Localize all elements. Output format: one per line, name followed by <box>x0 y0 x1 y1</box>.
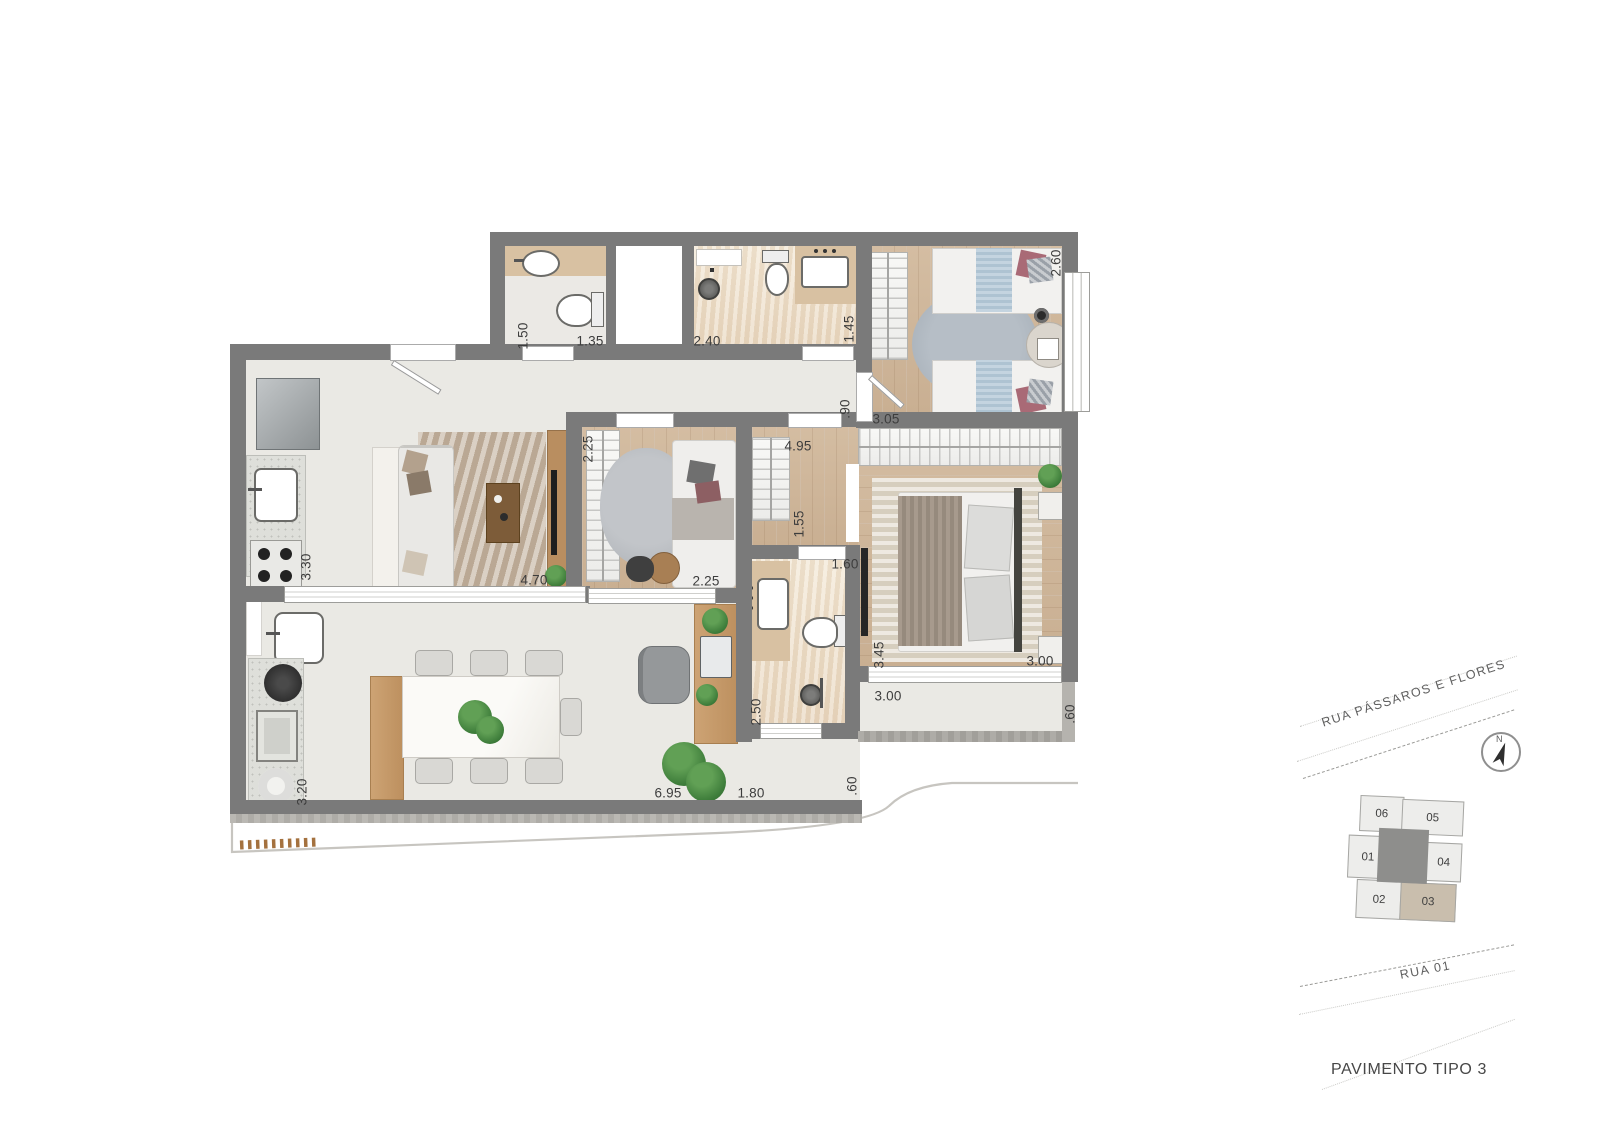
wall-bath1-shaft <box>606 246 616 350</box>
wall-nook-right <box>736 412 752 742</box>
master-tv <box>861 548 868 636</box>
wall-terrace-bottom <box>230 800 862 814</box>
coffee-table-items <box>494 495 502 503</box>
dim-bath1-width: 1.35 <box>576 334 603 349</box>
bath2-toilet-tank <box>762 250 789 263</box>
suite-bath-sink <box>757 578 789 630</box>
master-blanket <box>898 496 962 646</box>
bed1-runner <box>976 248 1012 312</box>
stove-burners <box>258 548 270 560</box>
terrace-niche <box>246 600 262 656</box>
stove <box>250 540 302 592</box>
dining-chair <box>525 650 563 676</box>
dim-suite-bath-depth: 2.50 <box>749 698 764 725</box>
desk-plant-2 <box>696 684 718 706</box>
dim-suite-hall-width: 1.55 <box>792 510 807 537</box>
bath1-faucet <box>514 259 524 262</box>
kitchen-sink <box>254 468 298 522</box>
keyplan-unit-02: 02 <box>1355 879 1403 920</box>
desk-plant-1 <box>702 608 728 634</box>
bedroom1-window <box>1064 272 1090 412</box>
dim-kitchen-depth: 3.30 <box>299 553 314 580</box>
master-pillow-1 <box>964 504 1014 571</box>
wall-left <box>230 344 246 816</box>
daybed-pillow-maroon <box>695 480 722 503</box>
suite-shower-head <box>800 684 822 706</box>
north-compass: N <box>1481 732 1521 772</box>
bath1-toilet-tank <box>591 292 604 327</box>
sofa-pillow-2 <box>406 470 431 495</box>
dim-bedroom1-width: 3.05 <box>872 412 899 427</box>
keyplan-unit-04: 04 <box>1425 842 1463 883</box>
wall-suite-bath-bottom-r <box>818 723 860 739</box>
dim-office-depth: 2.25 <box>581 435 596 462</box>
wall-master-left <box>845 545 860 723</box>
floor-plan-page: 1.50 1.35 2.40 1.45 2.60 3.05 .90 4.95 1… <box>0 0 1600 1130</box>
fridge <box>256 378 320 450</box>
dim-nook-edge: .60 <box>845 776 860 795</box>
terrace-parapet <box>230 814 862 823</box>
dim-office-width: 2.25 <box>692 574 719 589</box>
dining-chair <box>470 758 508 784</box>
master-plant <box>1038 464 1062 488</box>
burner <box>258 768 294 804</box>
office-chair <box>626 556 654 582</box>
tv <box>551 470 557 555</box>
master-headboard <box>1014 488 1022 652</box>
dining-chair <box>470 650 508 676</box>
bath2-faucet <box>814 249 818 253</box>
wall-office-bottom-r <box>712 588 752 603</box>
dim-master-depth: 3.45 <box>872 641 887 668</box>
suite-toilet-bowl <box>802 617 838 648</box>
living-plant <box>545 565 567 587</box>
sofa-pillow-3 <box>402 550 428 576</box>
unit-label: 04 <box>1437 856 1450 869</box>
kitchen-faucet <box>248 488 262 491</box>
dining-chair <box>415 650 453 676</box>
suite-corridor-opening <box>788 413 842 428</box>
laundry-sink <box>274 612 324 664</box>
balcony-parapet <box>858 731 1064 742</box>
dim-bath2-width: 2.40 <box>693 334 720 349</box>
dim-hall-width: .90 <box>838 399 853 418</box>
sofa-console <box>372 447 400 590</box>
dim-suite-length: 4.95 <box>784 439 811 454</box>
dim-master-width: 3.00 <box>1026 654 1053 669</box>
dim-suite-bath-width: 1.60 <box>831 557 858 572</box>
bath1-toilet-bowl <box>556 294 594 327</box>
laptop <box>700 636 732 678</box>
wok-pan <box>264 664 302 702</box>
suite-bath-window <box>760 723 822 739</box>
dim-nook-width: 1.80 <box>737 786 764 801</box>
entry-door <box>390 344 456 361</box>
laundry-faucet <box>266 632 280 635</box>
dining-chair <box>415 758 453 784</box>
bath2-toilet-bowl <box>765 263 789 296</box>
side-table-cup <box>1034 308 1049 323</box>
side-table-tray <box>1037 338 1059 360</box>
unit-label: 05 <box>1426 811 1439 824</box>
dim-terrace-depth: 3.20 <box>295 778 310 805</box>
office-window <box>588 588 716 604</box>
dim-terrace-length: 6.95 <box>654 786 681 801</box>
dim-living-width: 4.70 <box>520 573 547 588</box>
dim-bedroom1-depth: 2.60 <box>1049 249 1064 276</box>
plan-caption: PAVIMENTO TIPO 3 <box>1331 1061 1487 1079</box>
wall-shaft-bath2 <box>682 246 694 350</box>
living-sliding-door <box>284 586 586 603</box>
dim-bath2-depth: 1.45 <box>842 315 857 342</box>
master-opening <box>846 464 859 542</box>
keyplan: 06 05 01 04 02 03 <box>1337 782 1473 928</box>
bath2-door <box>802 346 854 361</box>
unit-label: 03 <box>1421 896 1434 909</box>
wall-right-master <box>1062 406 1078 682</box>
wall-top <box>490 232 1078 246</box>
unit-label: 01 <box>1361 851 1374 864</box>
wall-bath1-left <box>490 232 505 350</box>
unit-label: 02 <box>1372 893 1385 906</box>
master-closet <box>858 428 1062 466</box>
table-plant-2 <box>476 716 504 744</box>
office-door <box>616 413 674 428</box>
north-arrow-icon <box>1490 740 1514 768</box>
master-pillow-2 <box>964 574 1014 641</box>
wall-living-bottom-l <box>230 586 286 602</box>
master-window <box>868 666 1062 683</box>
shaft <box>616 246 682 350</box>
unit-label: 06 <box>1375 808 1388 821</box>
bedroom1-wardrobe <box>868 252 908 360</box>
dim-balcony-depth: .60 <box>1063 704 1078 723</box>
desk-chair <box>638 646 690 704</box>
north-label: N <box>1496 734 1503 744</box>
dining-chair <box>560 698 582 736</box>
bath2-shelf <box>696 249 742 266</box>
suite-shower-bar <box>820 678 823 708</box>
dining-bench <box>370 676 404 800</box>
dim-balcony-width: 3.00 <box>874 689 901 704</box>
daybed-blanket <box>672 498 734 540</box>
dining-chair <box>525 758 563 784</box>
keyplan-core <box>1377 828 1429 884</box>
bath1-sink <box>522 250 560 277</box>
floor-plant-large-2 <box>686 762 726 802</box>
shower-head <box>698 278 720 300</box>
grill <box>256 710 298 762</box>
bed2-pillow-check <box>1026 378 1053 405</box>
keyplan-unit-03-highlighted: 03 <box>1399 882 1457 922</box>
coffee-table <box>486 483 520 543</box>
bath2-sink <box>801 256 849 288</box>
dim-bath1-depth: 1.50 <box>516 322 531 349</box>
